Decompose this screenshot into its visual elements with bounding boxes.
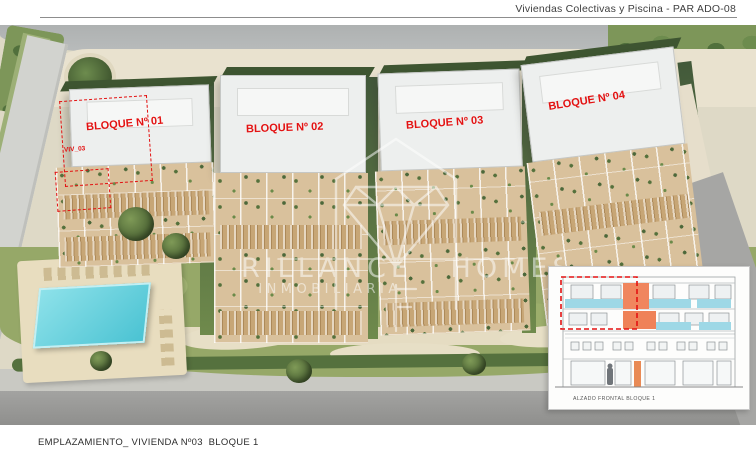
tree <box>118 207 154 241</box>
tree <box>462 353 486 375</box>
pergola <box>385 299 524 328</box>
pergola <box>220 311 362 335</box>
tree <box>286 359 312 383</box>
block-2-terraces <box>214 173 368 343</box>
stair-tower-highlight <box>623 283 649 309</box>
building-block-2 <box>214 75 368 343</box>
block-3-terraces <box>375 166 531 335</box>
pergola <box>539 194 691 236</box>
elevation-caption: ALZADO FRONTAL BLOQUE 1 <box>573 396 655 402</box>
frontal-elevation-drawing: ALZADO FRONTAL BLOQUE 1 <box>549 267 749 409</box>
pergola <box>220 225 362 249</box>
person-silhouette <box>607 368 613 385</box>
stair-tower-highlight <box>623 311 656 329</box>
viv03-terrace-dashed-outline <box>55 168 112 212</box>
building-block-3 <box>371 68 530 335</box>
viv-03-label: VIV_03 <box>64 145 86 153</box>
entrance-door-highlight <box>634 361 641 387</box>
plan-sheet-page: Viviendas Colectivas y Piscina - PAR ADO… <box>0 0 756 456</box>
elevation-inset-panel: ALZADO FRONTAL BLOQUE 1 <box>548 266 750 410</box>
tree <box>162 233 190 259</box>
title-divider <box>40 17 737 18</box>
tree <box>90 351 112 371</box>
sheet-caption: EMPLAZAMIENTO_ VIVIENDA Nº03 BLOQUE 1 <box>38 437 259 448</box>
pergola <box>383 217 522 246</box>
swimming-pool <box>33 282 151 348</box>
site-plan-render: BLOQUE Nº 01 VIV_03 BLOQUE Nº 02 BLOQUE … <box>0 25 756 425</box>
sheet-title: Viviendas Colectivas y Piscina - PAR ADO… <box>515 3 736 15</box>
